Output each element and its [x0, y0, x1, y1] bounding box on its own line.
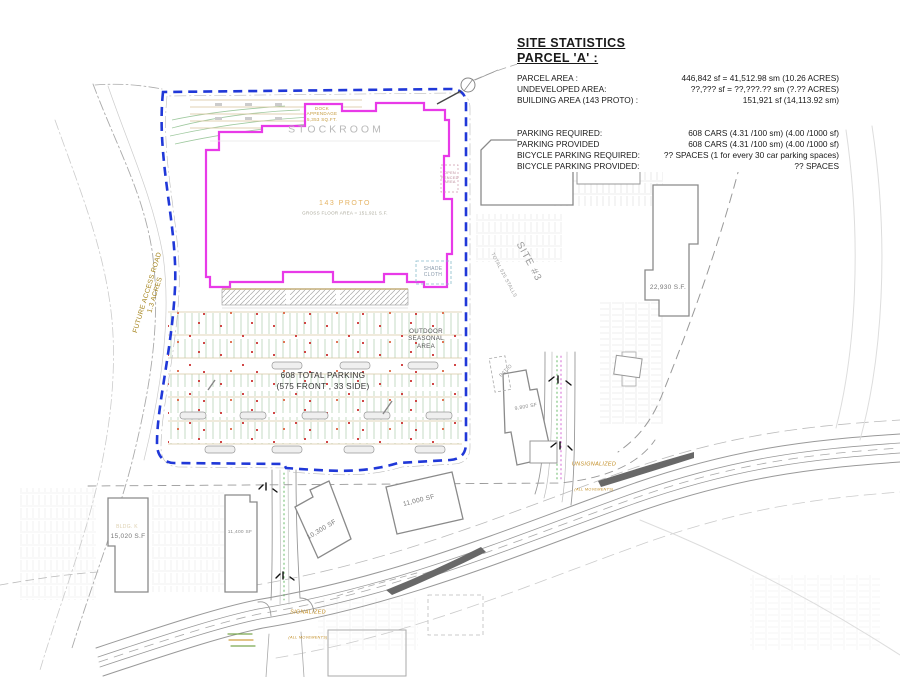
- site-statistics-panel: SITE STATISTICS PARCEL 'A' : PARCEL AREA…: [517, 36, 839, 172]
- stat-row-bicycle-provided: BICYCLE PARKING PROVIDED:?? SPACES: [517, 161, 839, 172]
- stat-row-undeveloped-area: UNDEVELOPED AREA:??,??? sf = ??,???.?? s…: [517, 84, 839, 95]
- parking-field-layer: [168, 312, 462, 453]
- stat-row-bicycle-required: BICYCLE PARKING REQUIRED:?? SPACES (1 fo…: [517, 150, 839, 161]
- stat-row-parking-provided: PARKING PROVIDED608 CARS (4.31 /100 sm) …: [517, 139, 839, 150]
- stats-subheading: PARCEL 'A' :: [517, 51, 839, 66]
- stat-row-building-area: BUILDING AREA (143 PROTO) :151,921 sf (1…: [517, 95, 839, 106]
- proposed-building: [206, 103, 458, 287]
- stats-rows: PARCEL AREA :446,842 sf = 41,512.98 sm (…: [517, 73, 839, 172]
- stats-heading: SITE STATISTICS: [517, 36, 839, 51]
- stat-row-parcel-area: PARCEL AREA :446,842 sf = 41,512.98 sm (…: [517, 73, 839, 84]
- site-plan-canvas: SITE STATISTICS PARCEL 'A' : PARCEL AREA…: [0, 0, 900, 677]
- stat-row-parking-required: PARKING REQUIRED:608 CARS (4.31 /100 sm)…: [517, 128, 839, 139]
- sidewalk-strip: [222, 289, 408, 308]
